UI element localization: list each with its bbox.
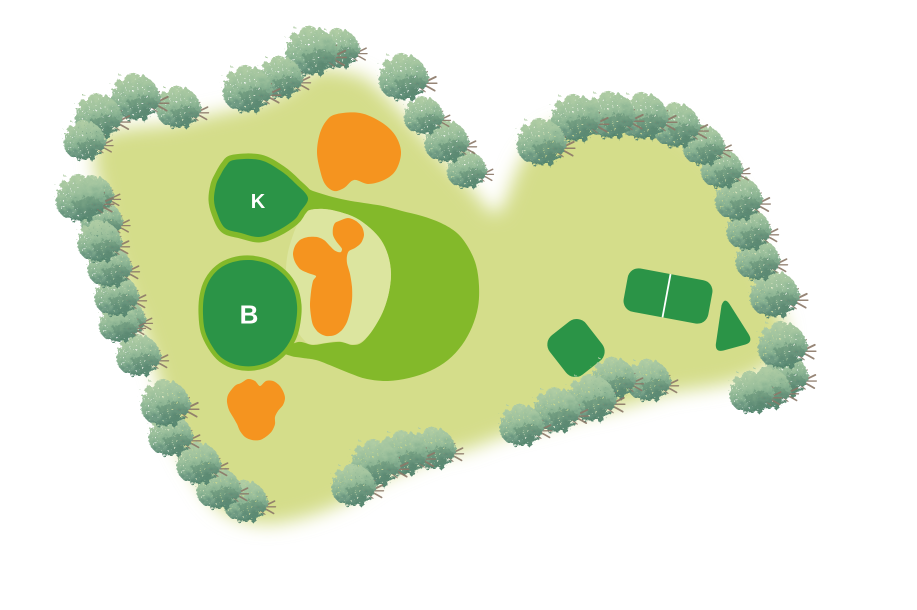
svg-text:K: K: [251, 191, 266, 213]
svg-text:B: B: [240, 300, 259, 330]
